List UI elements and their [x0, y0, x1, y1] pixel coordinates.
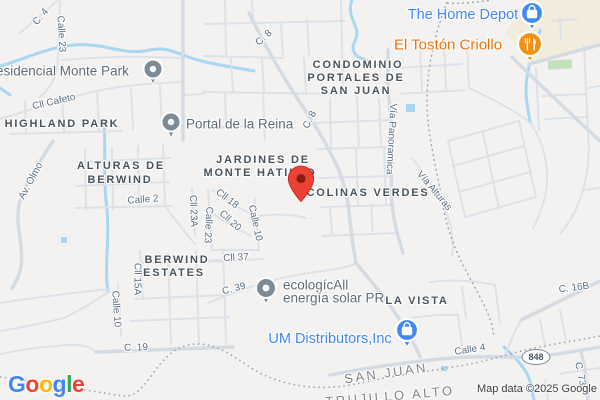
generic-poi-pin-monte-park[interactable] [144, 60, 163, 85]
shopping-bag-pin-um-distributors[interactable] [396, 319, 418, 347]
generic-poi-pin-portal-reina[interactable] [162, 113, 181, 139]
map-canvas[interactable]: C. 4 Calle 23 Cll Cafeto C. 8 C. 8 Av. O… [0, 0, 600, 400]
map-pins-layer [0, 0, 600, 400]
shopping-bag-pin-home-depot[interactable] [521, 2, 543, 30]
destination-pin[interactable] [288, 166, 313, 202]
restaurant-fork-knife-pin-el-toston[interactable] [518, 32, 542, 62]
google-logo[interactable]: Google [8, 371, 84, 398]
generic-poi-pin-ecologic[interactable] [256, 278, 276, 304]
map-attribution: Map data ©2025 Google [477, 383, 597, 395]
